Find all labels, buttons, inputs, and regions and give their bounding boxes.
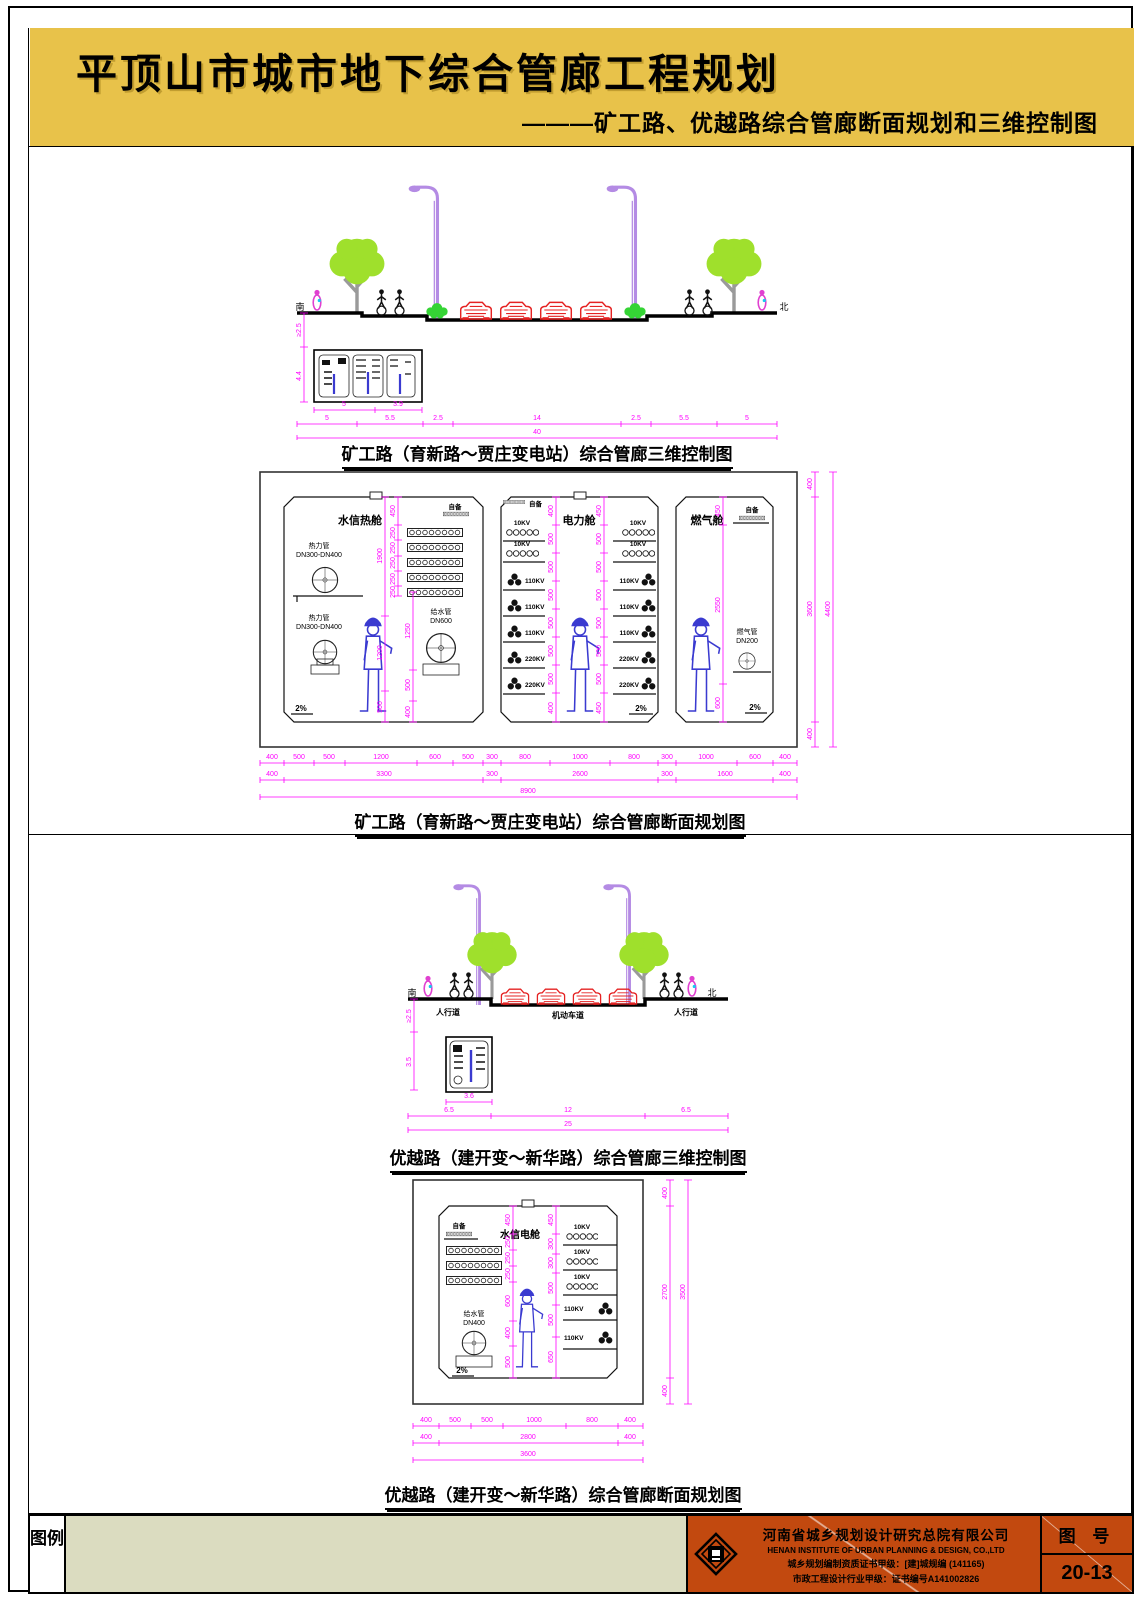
width-dim: 800 [586,1417,598,1424]
car-icon [581,302,612,320]
street-lamp-icon [603,884,629,1005]
road-ground-line [408,999,728,1005]
height-dim: 300 [548,1257,555,1269]
cable-tray-icon [408,544,463,552]
width-dim: 300 [661,771,673,778]
height-dim: 500 [548,533,555,545]
width-dim: 400 [624,1417,636,1424]
car-icon [501,302,532,320]
cable-circles-icon [567,1259,599,1265]
cable-circles-icon [507,530,539,536]
height-dim: 500 [596,589,603,601]
width-dim: 500 [449,1417,461,1424]
width-dim: 400 [420,1417,432,1424]
cyclist-icon [464,972,473,998]
height-dim: 600 [715,697,722,709]
pipe-label: 热力管 [309,613,330,622]
height-dim: 400 [405,706,412,718]
road-dim: 5.5 [385,415,395,422]
cable-label: 220KV [525,682,546,689]
caption-corridor2: 优越路（建开变～新华路）综合管廊断面规划图 [380,1481,746,1510]
pipe-label: 燃气管 [737,627,758,636]
mini-corridor-box [446,1037,492,1092]
road-total-dim: 40 [533,429,541,436]
width-dim: 800 [519,754,531,761]
title-block: 图例 河南省城乡规划设计研究总院有限公司 HENAN INSTITUTE OF … [28,1514,1134,1594]
cable-label: 10KV [574,1274,591,1281]
slope-label: 2% [635,704,647,713]
cable-label: 10KV [514,520,531,527]
company-name-cn: 河南省城乡规划设计研究总院有限公司 [738,1524,1034,1544]
outer-height-total: 4400 [825,601,832,617]
title-bar: 平顶山市城市地下综合管廊工程规划 ———矿工路、优越路综合管廊断面规划和三维控制… [30,28,1134,147]
car-icon [501,989,528,1005]
company-block: 河南省城乡规划设计研究总院有限公司 HENAN INSTITUTE OF URB… [688,1516,1040,1592]
cable-circles-icon [623,530,655,536]
width-dim: 400 [779,771,791,778]
width-dim: 400 [266,771,278,778]
cable-label: 10KV [574,1224,591,1231]
cable-circles-icon [623,551,655,557]
cable-circles-icon [567,1284,599,1290]
legend-label: 图例 [30,1516,66,1592]
width-dim: 400 [420,1434,432,1441]
car-icon [573,989,600,1005]
width-dim: 400 [266,754,278,761]
sheet-page: 平顶山市城市地下综合管廊工程规划 ———矿工路、优越路综合管廊断面规划和三维控制… [0,0,1143,1600]
cable-label: 10KV [514,541,531,548]
cable-tray-icon [447,1262,502,1270]
compartment-title: 电力舱 [563,513,597,527]
depth-dim: ≥2.5 [296,323,303,337]
street-lamp-icon [607,185,636,318]
cable-tray-icon [408,574,463,582]
height-dim: 1250 [405,623,412,639]
box-dim: 3.9 [393,401,403,408]
height-dim: 500 [596,645,603,657]
height-dim: 450 [505,1214,512,1226]
outer-height-dim: 400 [662,1187,669,1199]
cable-label: 110KV [525,578,545,585]
height-dim: 650 [548,1351,555,1363]
width-dim: 500 [293,754,305,761]
height-dim: 500 [405,679,412,691]
cable-tray-icon [447,1247,502,1255]
pipe-size: DN600 [430,618,452,625]
width-dim: 500 [462,754,474,761]
width-dim: 1200 [373,754,389,761]
width-total: 8900 [520,788,536,795]
tray-dim: 250 [390,557,397,569]
width-dim: 1000 [698,754,714,761]
tray-dim: 450 [390,505,397,517]
cable-label: 220KV [619,682,640,689]
pipe-size: DN300-DN400 [296,624,342,631]
height-dim: 500 [548,645,555,657]
depth-dim: 3.5 [406,1057,413,1067]
width-dim: 600 [749,754,761,761]
cyclist-icon [395,289,404,315]
height-dim: 400 [548,702,555,714]
car-icon [461,302,492,320]
cable-tray-icon [739,516,765,520]
reserve-label: 自备 [746,505,760,514]
height-dim: 250 [505,1252,512,1264]
pipe-size: DN300-DN400 [296,552,342,559]
width-dim: 2600 [572,771,588,778]
width-dim: 500 [481,1417,493,1424]
company-name-en: HENAN INSTITUTE OF URBAN PLANNING & DESI… [738,1546,1034,1555]
width-dim: 3300 [376,771,392,778]
height-dim: 500 [505,1356,512,1368]
company-logo [694,1532,738,1576]
cable-label: 110KV [564,1306,584,1313]
cable-label: 110KV [564,1335,584,1342]
outer-height-dim: 3600 [807,601,814,617]
height-dim: 400 [548,505,555,517]
heat-pipe-icon [312,567,337,592]
car-icon [537,989,564,1005]
width-dim: 500 [323,754,335,761]
road-total-dim: 25 [564,1121,572,1128]
height-dim: 2550 [715,597,722,613]
cable-label: 10KV [630,520,647,527]
cable-label: 110KV [525,630,545,637]
corridor1-drawing: 水信热舱 自备 热力管 DN300-DN400 热力管 DN300-DN400 … [255,462,845,806]
road-dim: 2.5 [433,415,443,422]
cyclist-icon [674,972,683,998]
height-dim: 1900 [377,548,384,564]
width-dim: 600 [429,754,441,761]
outer-height-dim: 400 [662,1385,669,1397]
pipe-size: DN400 [463,1320,485,1327]
outer-height-total: 3500 [680,1284,687,1300]
corridor2-drawing: 水信电舱 自备 给水管 DN400 2% 10KV 10KV 10KV 110K [398,1168,728,1478]
south-label: 南 [407,987,416,998]
pipe-label: 给水管 [464,1309,485,1318]
car-icon [541,302,572,320]
carriageway-label: 机动车道 [552,1010,584,1020]
north-label: 北 [707,988,716,998]
outer-height-dim: 400 [807,478,814,490]
page-title: 平顶山市城市地下综合管廊工程规划 [76,40,780,100]
cyclist-icon [377,289,386,315]
height-dim: 500 [596,673,603,685]
height-dim: 250 [505,1268,512,1280]
height-dim: 1200 [377,645,384,661]
caption-corridor1: 矿工路（育新路～贾庄变电站）综合管廊断面规划图 [255,808,845,837]
width-dim: 300 [486,754,498,761]
street-lamp-icon [409,185,438,318]
depth-dim: ≥2.5 [406,1009,413,1023]
outer-height-dim: 2700 [662,1284,669,1300]
width-dim: 300 [486,771,498,778]
height-dim: 500 [596,561,603,573]
cable-label: 110KV [619,578,639,585]
width-dim: 800 [628,754,640,761]
cable-label: 110KV [525,604,545,611]
pipe-label: 热力管 [309,541,330,550]
cyclist-icon [685,289,694,315]
company-cert-2: 市政工程设计行业甲级：证书编号A141002826 [738,1572,1034,1585]
tray-dim: 250 [390,527,397,539]
height-dim: 450 [596,505,603,517]
height-dim: 500 [548,1282,555,1294]
cable-circles-icon [507,551,539,557]
height-dim: 500 [596,617,603,629]
road-dim: 2.5 [631,415,641,422]
road-dim: 5.5 [679,415,689,422]
reserve-label: 自备 [529,499,543,508]
width-dim: 2800 [520,1434,536,1441]
reserve-label: 自备 [453,1221,467,1230]
width-dim: 400 [779,754,791,761]
pedestrian-icon [688,976,696,996]
water-pipe-icon [462,1331,485,1354]
cable-label: 220KV [619,656,640,663]
cable-tray-icon [503,500,525,503]
sheet-number-value: 20-13 [1042,1555,1132,1592]
cyclist-icon [450,972,459,998]
slope-label: 2% [295,704,307,713]
road-dim: 5 [325,415,329,422]
pipe-label: 给水管 [431,607,452,616]
outer-height-dim: 400 [807,728,814,740]
cable-label: 110KV [619,630,639,637]
height-dim: 250 [505,1236,512,1248]
car-icon [609,989,636,1005]
height-dim: 450 [596,702,603,714]
legend-area [66,1516,688,1592]
compartment-title: 水信热舱 [338,513,383,527]
sidewalk-label: 人行道 [436,1007,460,1017]
box-dim: 5 [342,401,346,408]
pedestrian-icon [313,290,321,310]
tray-dim: 250 [390,573,397,585]
slope-label: 2% [456,1366,468,1375]
reserve-label: 自备 [449,502,463,511]
tree-icon [707,239,762,313]
cable-label: 110KV [619,604,639,611]
height-dim: 450 [715,505,722,517]
road-dim: 6.5 [444,1107,454,1114]
road1-drawing: 南 北 ≥2.5 4.4 53.9 55.52.5142.55.55 40 [272,150,802,440]
height-dim: 300 [548,1238,555,1250]
height-dim: 500 [548,673,555,685]
width-dim: 400 [624,1434,636,1441]
water-pipe-icon [427,634,456,663]
cable-tray-icon [447,1277,502,1285]
height-dim: 500 [548,589,555,601]
cable-circles-icon [567,1234,599,1240]
height-dim: 400 [505,1327,512,1339]
pedestrian-icon [758,290,766,310]
cable-label: 220KV [525,656,546,663]
width-dim: 1000 [526,1417,542,1424]
cable-label: 10KV [574,1249,591,1256]
page-subtitle: ———矿工路、优越路综合管廊断面规划和三维控制图 [522,104,1098,138]
sidewalk-label: 人行道 [674,1007,698,1017]
tray-dim: 250 [390,542,397,554]
north-label: 北 [779,302,788,312]
height-dim: 500 [377,701,384,713]
height-dim: 450 [548,1214,555,1226]
width-dim: 300 [661,754,673,761]
road-dim: 12 [564,1107,572,1114]
height-dim: 500 [548,561,555,573]
south-label: 南 [295,301,304,312]
slope-label: 2% [749,703,761,712]
pedestrian-icon [424,976,432,996]
cable-tray-icon [446,1232,472,1236]
box-dim: 3.6 [464,1093,474,1100]
height-dim: 500 [548,617,555,629]
sheet-number-label: 图 号 [1042,1516,1132,1555]
road-dim: 14 [533,415,541,422]
sheet-number-block: 图 号 20-13 [1040,1516,1132,1592]
pipe-size: DN200 [736,638,758,645]
mini-corridor-box [314,350,422,402]
width-dim: 1600 [717,771,733,778]
gas-pipe-icon [739,653,755,669]
cable-tray-icon [443,512,469,516]
shrub-icon [624,303,645,318]
road-dim: 5 [745,415,749,422]
tray-dim: 250 [390,586,397,598]
cable-tray-icon [408,589,463,597]
cable-tray-icon [408,529,463,537]
height-dim: 500 [596,533,603,545]
height-dim: 600 [505,1295,512,1307]
road-dim: 6.5 [681,1107,691,1114]
company-cert-1: 城乡规划编制资质证书甲级：[建]城规编 (141165) [738,1557,1034,1570]
tree-icon [330,239,385,313]
height-dim: 500 [548,1314,555,1326]
shrub-icon [426,303,447,318]
road2-drawing: 南 北 人行道 机动车道 人行道 ≥2.5 3.5 3.6 6.5126.5 2… [368,842,768,1142]
cable-label: 10KV [630,541,647,548]
cyclist-icon [660,972,669,998]
cable-tray-icon [408,559,463,567]
depth-dim: 4.4 [296,371,303,381]
width-total: 3600 [520,1451,536,1458]
width-dim: 1000 [572,754,588,761]
